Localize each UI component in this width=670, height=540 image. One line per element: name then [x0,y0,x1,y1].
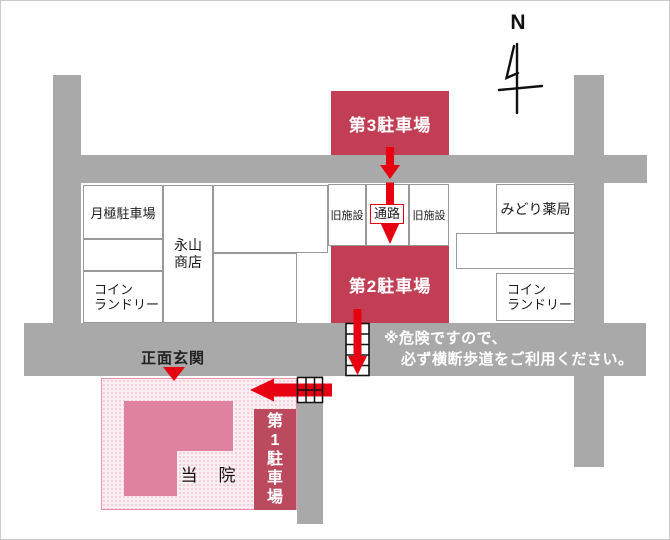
parking3-label: 第3駐車場 [349,111,431,136]
old-facility-west-box: 旧施設 [328,184,366,246]
coin-laundry-east-label: コイン ランドリー [507,282,572,313]
midori-pharmacy-label: みどり薬局 [501,199,571,219]
vacant-box-center-upper [213,185,328,253]
midori-pharmacy-box: みどり薬局 [496,184,575,233]
map-canvas: N 第3駐車場 第2駐車場 月極駐車場 コイン ランドリー 永山 商店 旧施設 … [0,0,670,540]
vacant-box-west [83,239,163,271]
warning-line-1: ※危険ですので、 [384,328,634,349]
coin-laundry-west-label: コイン ランドリー [94,282,159,313]
road-east-vertical [574,75,604,467]
main-entrance-label: 正面玄関 [133,347,213,368]
vacant-box-east [456,233,575,269]
north-arrow-icon [499,44,542,113]
coin-laundry-west-box: コイン ランドリー [83,271,163,323]
nagayama-shoten-label: 永山 商店 [174,237,202,270]
parking1-box: 第1駐車場 [254,409,296,510]
nagayama-shoten-box: 永山 商店 [163,185,213,323]
coin-laundry-east-box: コイン ランドリー [496,273,575,321]
old-facility-west-label: 旧施設 [331,207,364,223]
road-west-vertical [53,75,81,323]
parking2-label: 第2駐車場 [349,272,431,297]
north-label: N [502,11,534,35]
warning-note: ※危険ですので、 必ず横断歩道をご利用ください。 [384,328,634,370]
warning-line-2: 必ず横断歩道をご利用ください。 [401,349,634,370]
clinic-label: 当 院 [169,461,249,486]
parking2-box: 第2駐車場 [331,246,449,323]
road-clinic-vertical [297,376,323,524]
passage-label: 通路 [370,204,404,224]
old-facility-east-box: 旧施設 [409,184,449,246]
monthly-parking-box: 月極駐車場 [83,185,163,239]
parking3-box: 第3駐車場 [331,91,449,155]
vacant-box-center-lower [213,253,297,323]
road-north-horizontal [53,155,647,183]
monthly-parking-label: 月極駐車場 [90,203,155,222]
parking1-label: 第1駐車場 [266,412,284,507]
old-facility-east-label: 旧施設 [413,207,446,223]
